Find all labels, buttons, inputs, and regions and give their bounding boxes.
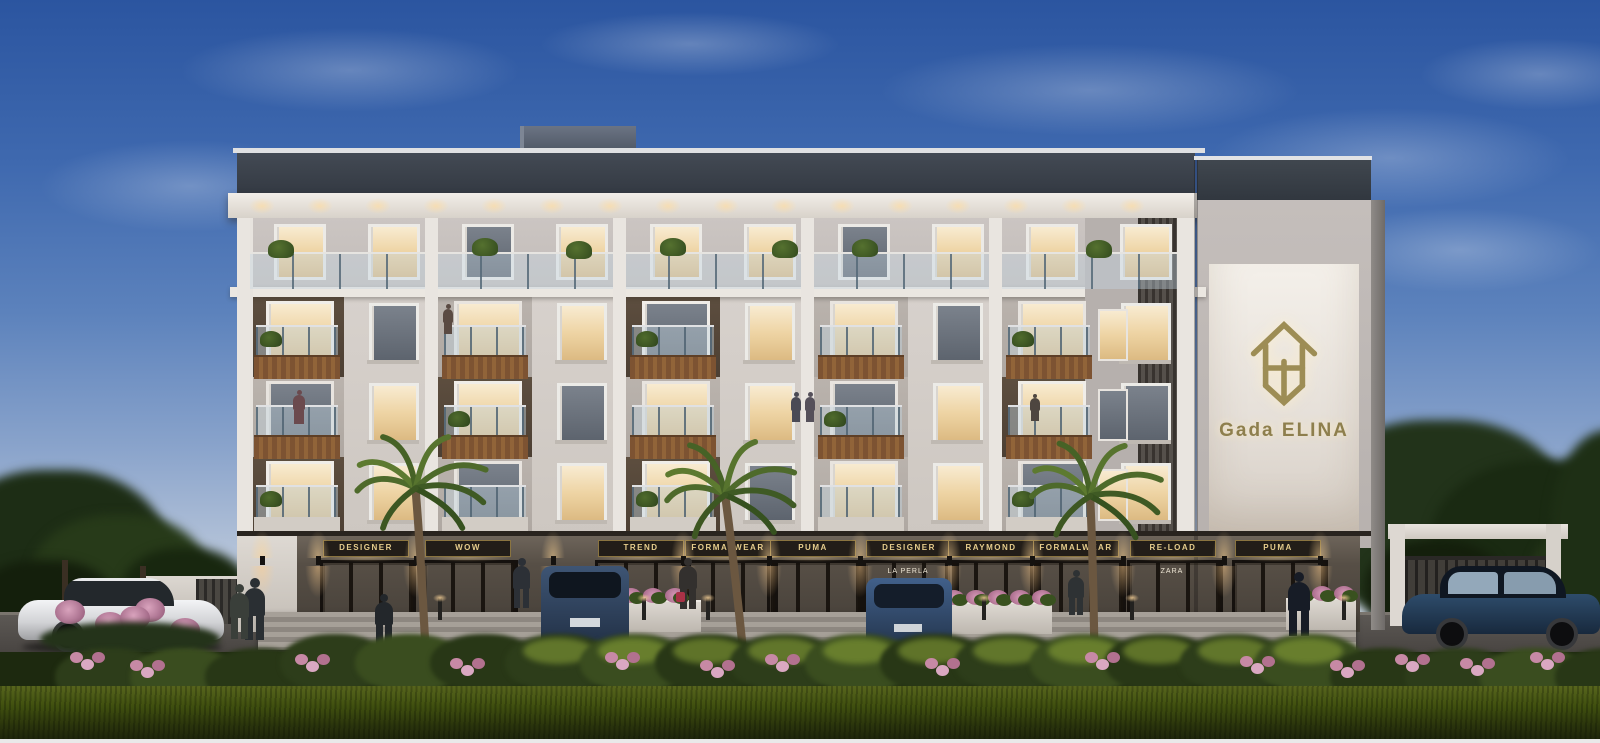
hedge-flowers [1096, 659, 1109, 670]
balcony-plant [1086, 240, 1112, 258]
glass-balcony-railing [820, 325, 902, 358]
palm-tree [657, 432, 818, 650]
hedge-flowers [787, 654, 800, 665]
sconce-downlight [1211, 566, 1237, 598]
right-gate-beam [1388, 524, 1568, 539]
cloud [540, 12, 840, 76]
tower-side-return [1371, 200, 1385, 630]
wood-spandrel [254, 435, 340, 459]
dark-sedan-window [1448, 572, 1498, 594]
person-silhouette [235, 584, 244, 593]
hedge-flowers [1251, 663, 1264, 674]
person-silhouette [299, 410, 304, 424]
downlight-glow [307, 198, 333, 214]
project-name-sign: Gada ELINA [1209, 420, 1359, 442]
person-silhouette [1289, 610, 1297, 636]
hedge-flowers [947, 658, 960, 669]
hedge-flowers [776, 661, 789, 672]
hedge-flowers [616, 659, 629, 670]
wall-sconce [316, 556, 321, 565]
downlight-glow [887, 198, 913, 214]
hedge-flowers [936, 665, 949, 676]
suv-rear-glass [549, 572, 621, 598]
balcony-plant [636, 491, 658, 507]
hedge-flowers [1552, 652, 1565, 663]
window-sill [931, 440, 983, 444]
balcony-plant [1012, 331, 1034, 347]
hedge-flowers [141, 667, 154, 678]
sconce-uplight [937, 530, 961, 558]
hedge-flowers [1352, 660, 1365, 671]
person-silhouette [293, 395, 305, 410]
person-silhouette [513, 566, 530, 589]
balcony-plant [772, 240, 798, 258]
balcony-plant [472, 238, 498, 256]
cloud [1420, 38, 1600, 110]
gada-house-monogram-icon [1244, 318, 1324, 410]
building-exterior-render: Gada ELINA DESIGNERWOWTRENDFORMALWEARPUM… [0, 0, 1600, 743]
person-silhouette [523, 588, 529, 608]
hedge-flowers [1262, 656, 1275, 667]
window [369, 303, 419, 363]
facade-pier [613, 218, 626, 535]
window [933, 463, 983, 523]
person-silhouette [791, 397, 801, 411]
person-silhouette [518, 558, 526, 566]
downlight-glow [481, 198, 507, 214]
hedge-flowers [81, 659, 94, 670]
hedge-flowers [1417, 654, 1430, 665]
hedge-flowers [1482, 658, 1495, 669]
hedge-flowers [306, 661, 319, 672]
bollard-glow [637, 594, 651, 602]
window [557, 383, 607, 443]
sconce-downlight [305, 566, 331, 598]
balcony-plant [636, 331, 658, 347]
glass-balcony-railing [444, 325, 526, 358]
sconce-uplight [848, 530, 872, 558]
wood-spandrel [442, 355, 528, 379]
downlight-glow [365, 198, 391, 214]
window [557, 463, 607, 523]
window [745, 303, 795, 363]
hedge-flowers [711, 667, 724, 678]
flower-bush [55, 600, 85, 624]
window [933, 383, 983, 443]
downlight-glow [1061, 198, 1087, 214]
person-silhouette [805, 397, 815, 411]
wood-spandrel [630, 355, 716, 379]
person-silhouette [1294, 572, 1304, 582]
person-silhouette [796, 410, 800, 422]
window-sill [555, 520, 607, 524]
downlight-glow [655, 198, 681, 214]
facade-pier [989, 218, 1002, 535]
suv-plate [570, 618, 600, 627]
cloud [180, 28, 520, 112]
hedge-flowers [627, 652, 640, 663]
person-silhouette [514, 588, 520, 608]
bottom-border [0, 739, 1600, 743]
hedge-flowers [92, 652, 105, 663]
sconce-uplight [1212, 530, 1236, 558]
downlight-glow [713, 198, 739, 214]
window-sill [931, 360, 983, 364]
wood-spandrel [818, 355, 904, 379]
hedge-flowers [317, 654, 330, 665]
glass-balcony-railing [1008, 405, 1090, 438]
window [1121, 383, 1171, 443]
window-sill [743, 360, 795, 364]
person-silhouette [448, 322, 452, 334]
person-silhouette [230, 593, 249, 618]
lawn [0, 686, 1600, 743]
roof-parapet-band [237, 153, 1195, 193]
wood-spandrel [1006, 355, 1092, 379]
wood-spandrel [818, 435, 904, 459]
balcony-plant [260, 491, 282, 507]
bollard-glow [977, 594, 991, 602]
balcony-plant [260, 331, 282, 347]
downlight-glow [539, 198, 565, 214]
hedge-flowers [1406, 661, 1419, 672]
sconce-uplight [1308, 530, 1332, 558]
wall-sconce [1318, 556, 1323, 565]
person-silhouette [256, 615, 264, 640]
window [557, 303, 607, 363]
sconce-uplight [306, 530, 330, 558]
hedge-flowers [152, 660, 165, 671]
hedge-flowers [1471, 665, 1484, 676]
glass-balcony-railing [820, 485, 902, 518]
downlight-glow [829, 198, 855, 214]
wall-sconce [551, 556, 556, 565]
downlight-glow [945, 198, 971, 214]
person-silhouette [443, 309, 453, 323]
balcony-plant [824, 411, 846, 427]
car-wheel [1546, 618, 1578, 650]
downlight-glow [771, 198, 797, 214]
sconce-uplight [541, 530, 565, 558]
balcony-plant [852, 239, 878, 257]
window-sill [555, 360, 607, 364]
attic-glass-railing [245, 252, 1191, 289]
louver-window [1098, 389, 1128, 441]
dark-sedan-window [1504, 572, 1556, 594]
tower-roof-band [1197, 160, 1371, 200]
window-sill [931, 520, 983, 524]
palm-tree [1019, 435, 1176, 650]
sconce-uplight [250, 530, 274, 558]
hedge-flowers [472, 658, 485, 669]
downlight-glow [249, 198, 275, 214]
person-silhouette [241, 617, 248, 639]
person-silhouette [810, 410, 814, 422]
window-sill [555, 440, 607, 444]
window [1121, 303, 1171, 363]
balcony-plant [660, 238, 686, 256]
downlight-glow [597, 198, 623, 214]
palm-tree [350, 430, 500, 640]
sedan-plate [894, 624, 922, 632]
person-silhouette [231, 617, 238, 639]
person-silhouette [1288, 582, 1310, 611]
glass-balcony-railing [632, 405, 714, 438]
downlight-glow [1119, 198, 1145, 214]
wall-sconce [260, 556, 265, 565]
hedge-flowers [1107, 652, 1120, 663]
wall-sconce [947, 556, 952, 565]
hedge-flowers [461, 665, 474, 676]
wall-sconce [858, 556, 863, 565]
car-wheel [1436, 618, 1468, 650]
person-silhouette [1301, 610, 1309, 636]
downlight-glow [1003, 198, 1029, 214]
facade-pier [1177, 218, 1195, 535]
balcony-plant [566, 241, 592, 259]
hedge-flowers [1541, 659, 1554, 670]
bollard-glow [1337, 594, 1351, 602]
louver-window [1098, 309, 1128, 361]
hedge-flowers [722, 660, 735, 671]
balcony-plant [268, 240, 294, 258]
sedan-rear-glass [874, 584, 944, 608]
downlight-glow [423, 198, 449, 214]
person-silhouette [1035, 410, 1039, 421]
wood-spandrel [254, 355, 340, 379]
person-silhouette [250, 578, 260, 588]
hedge-flowers [1341, 667, 1354, 678]
window-sill [367, 360, 419, 364]
window [933, 303, 983, 363]
wall-sconce [1222, 556, 1227, 565]
facade-pier [237, 218, 250, 535]
balcony-plant [448, 411, 470, 427]
